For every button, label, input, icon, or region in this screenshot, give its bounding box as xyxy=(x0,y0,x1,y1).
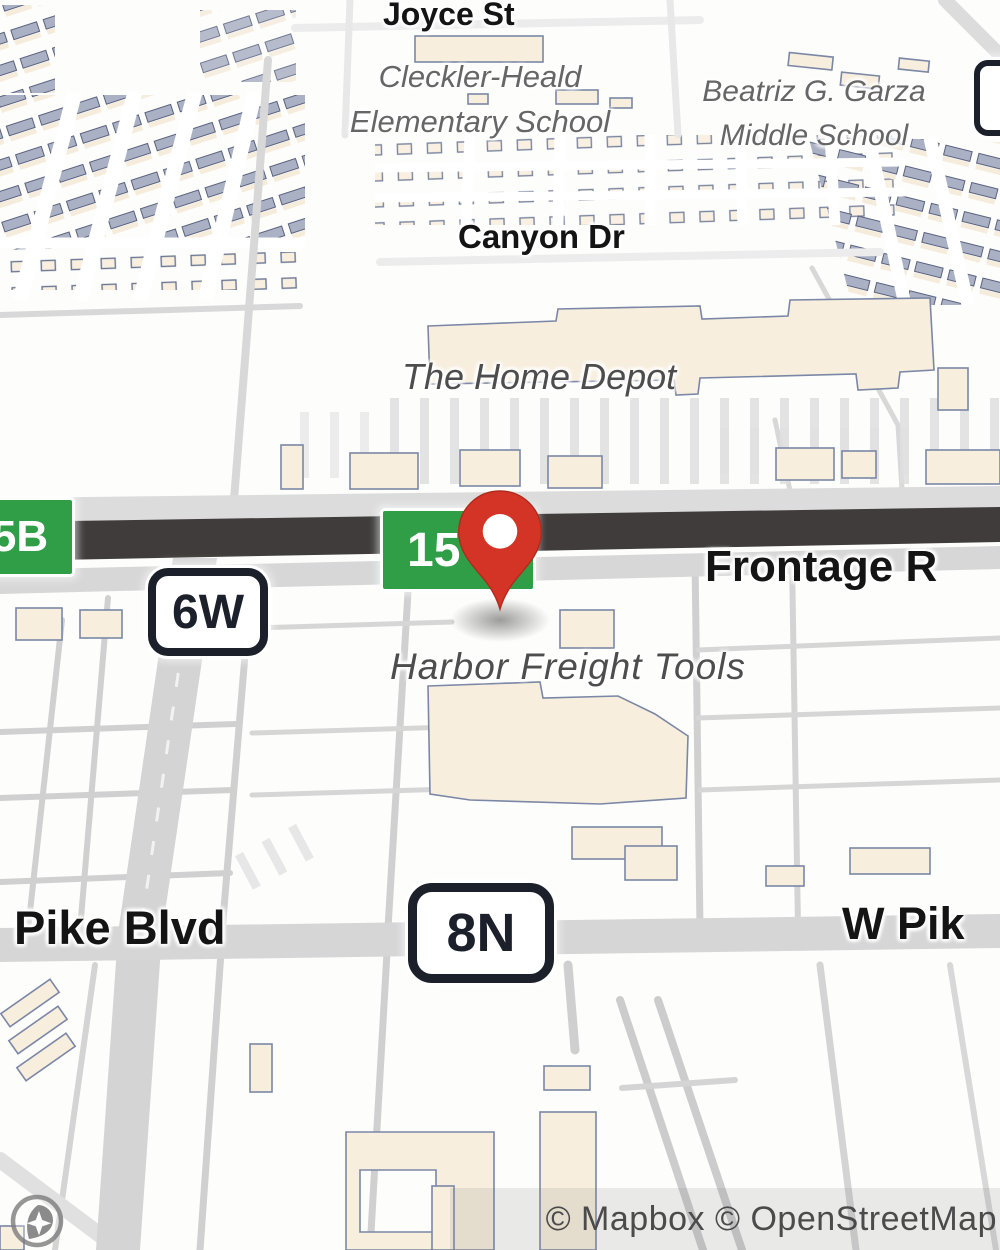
location-pin-icon xyxy=(452,488,548,619)
poi-label-cleckler-heald-school: Cleckler-Heald Elementary School xyxy=(330,54,630,144)
cleckler-line1: Cleckler-Heald xyxy=(330,54,630,99)
garza-line1: Beatriz G. Garza xyxy=(678,70,950,114)
mapbox-logo-icon[interactable] xyxy=(8,1192,66,1250)
exit-shield-5b-label: 5B xyxy=(0,512,48,562)
poi-label-garza-middle-school: Beatriz G. Garza Middle School xyxy=(678,70,950,158)
street-label-canyon-dr: Canyon Dr xyxy=(458,218,625,256)
map-canvas[interactable]: 5B 15 5 6W 8N Joyce St Cleckler-Heald El… xyxy=(0,0,1000,1250)
attribution-link[interactable]: © Mapbox © OpenStreetMap xyxy=(546,1200,997,1239)
route-shield-8n: 8N xyxy=(408,883,554,983)
route-shield-8n-label: 8N xyxy=(446,902,515,964)
attribution-bar: © Mapbox © OpenStreetMap xyxy=(450,1188,1000,1250)
route-shield-5: 5 xyxy=(974,60,1000,136)
poi-label-harbor-freight-tools: Harbor Freight Tools xyxy=(390,646,746,688)
route-shield-6w-label: 6W xyxy=(172,585,244,640)
street-label-frontage-rd: Frontage R xyxy=(705,542,937,592)
route-shield-6w: 6W xyxy=(148,568,268,656)
street-label-pike-blvd: Pike Blvd xyxy=(14,900,226,955)
cleckler-line2: Elementary School xyxy=(330,99,630,144)
street-label-w-pike: W Pik xyxy=(842,898,965,950)
garza-line2: Middle School xyxy=(678,114,950,158)
street-label-joyce-st: Joyce St xyxy=(383,0,515,33)
exit-shield-5b: 5B xyxy=(0,500,72,574)
poi-label-home-depot: The Home Depot xyxy=(402,356,676,398)
